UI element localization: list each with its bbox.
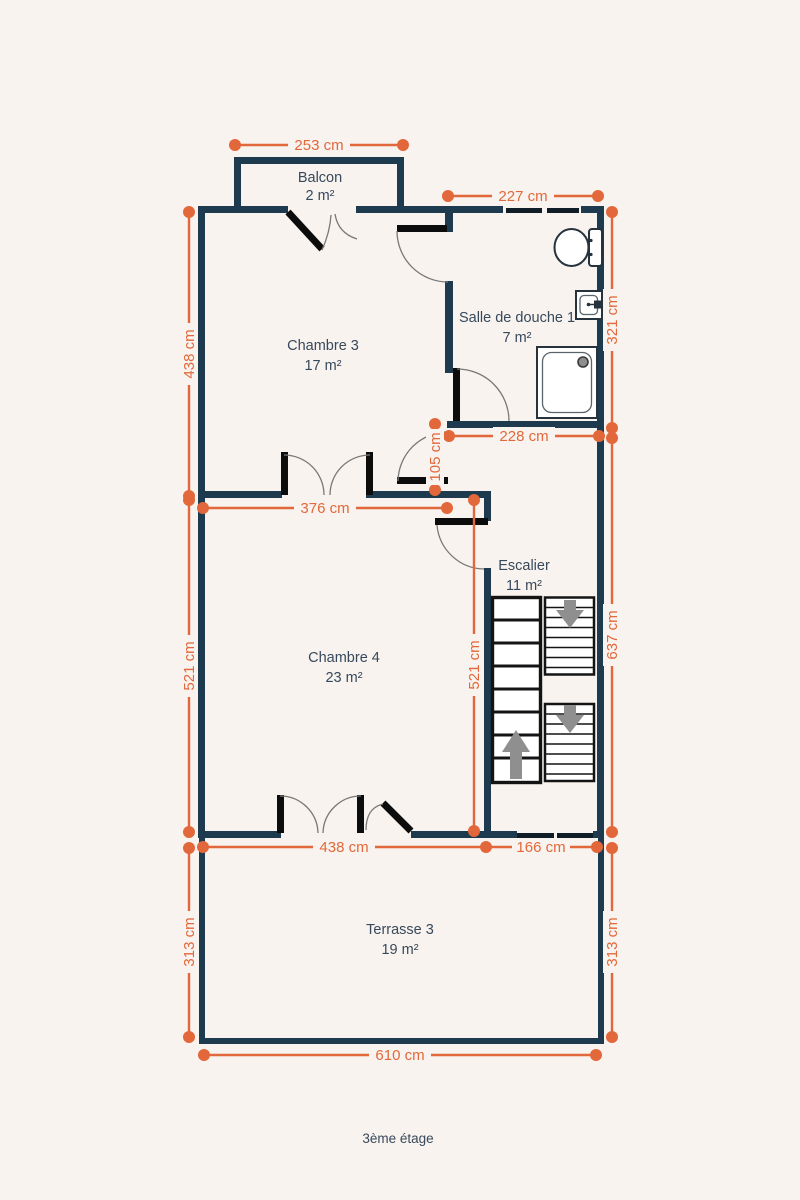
svg-text:313 cm: 313 cm [604,917,621,966]
svg-text:17 m²: 17 m² [304,358,341,374]
svg-text:637 cm: 637 cm [604,610,621,659]
floor-plan: 253 cm 227 cm 438 cm 321 cm 228 cm 105 c… [0,0,800,1200]
bathroom-entry-door [397,225,448,282]
svg-text:438 cm: 438 cm [181,329,198,378]
svg-text:228 cm: 228 cm [499,428,548,445]
svg-text:438 cm: 438 cm [319,839,368,856]
svg-text:Escalier: Escalier [498,558,550,574]
window-bar [517,833,554,838]
bedroom3-double-door [281,452,373,495]
terrace-single-door [366,803,411,831]
dimension-438-left: 438 cm [180,206,198,502]
balcony-door [288,212,357,250]
room-label-escalier: Escalier 11 m² [498,558,550,594]
dimension-376: 376 cm [197,499,453,517]
svg-text:23 m²: 23 m² [325,670,362,686]
svg-text:7 m²: 7 m² [503,330,532,346]
dimension-521-inner: 521 cm [465,494,483,837]
walls [198,157,604,1044]
room-label-terrasse: Terrasse 3 19 m² [366,922,434,958]
svg-text:19 m²: 19 m² [381,942,418,958]
svg-text:105 cm: 105 cm [427,432,444,481]
svg-text:376 cm: 376 cm [300,500,349,517]
svg-text:313 cm: 313 cm [181,917,198,966]
dimension-253: 253 cm [229,136,409,154]
sink-icon [576,291,602,319]
staircase [492,598,594,783]
dimension-228: 228 cm [443,427,605,445]
svg-text:521 cm: 521 cm [466,640,483,689]
dimension-610: 610 cm [198,1046,602,1064]
window-bar [557,833,593,838]
dimension-227: 227 cm [442,187,604,205]
window-bar [547,208,579,213]
svg-text:11 m²: 11 m² [506,578,542,594]
bathroom-inner-door [453,368,509,421]
dimension-321: 321 cm [603,206,621,434]
svg-text:2 m²: 2 m² [306,188,335,204]
svg-text:Chambre 3: Chambre 3 [287,338,359,354]
svg-text:166 cm: 166 cm [516,839,565,856]
svg-text:Balcon: Balcon [298,170,342,186]
dimension-105: 105 cm [426,418,444,496]
dimension-313-right: 313 cm [603,842,621,1043]
svg-text:521 cm: 521 cm [181,641,198,690]
terrace-double-door [277,795,364,833]
dimension-521-left: 521 cm [180,494,198,838]
svg-text:253 cm: 253 cm [294,137,343,154]
svg-text:Salle de douche 1: Salle de douche 1 [459,310,575,326]
floor-title: 3ème étage [362,1131,433,1146]
svg-text:Chambre 4: Chambre 4 [308,650,380,666]
room-label-chambre3: Chambre 3 17 m² [287,338,359,374]
drain-icon [578,357,588,367]
stair-room-door [435,518,488,569]
shower-tray-icon [537,347,597,418]
svg-text:610 cm: 610 cm [375,1047,424,1064]
window-bar [506,208,542,213]
dimension-438-bottom: 438 cm [197,838,492,856]
svg-text:321 cm: 321 cm [604,295,621,344]
room-label-balcon: Balcon 2 m² [298,170,342,204]
room-label-salle-de-douche: Salle de douche 1 7 m² [459,310,575,346]
toilet-icon [555,229,603,266]
dimension-313-left: 313 cm [180,842,198,1043]
room-label-chambre4: Chambre 4 23 m² [308,650,380,686]
dimension-166: 166 cm [486,838,603,856]
dimension-637: 637 cm [603,432,621,838]
svg-text:Terrasse 3: Terrasse 3 [366,922,434,938]
svg-text:227 cm: 227 cm [498,188,547,205]
